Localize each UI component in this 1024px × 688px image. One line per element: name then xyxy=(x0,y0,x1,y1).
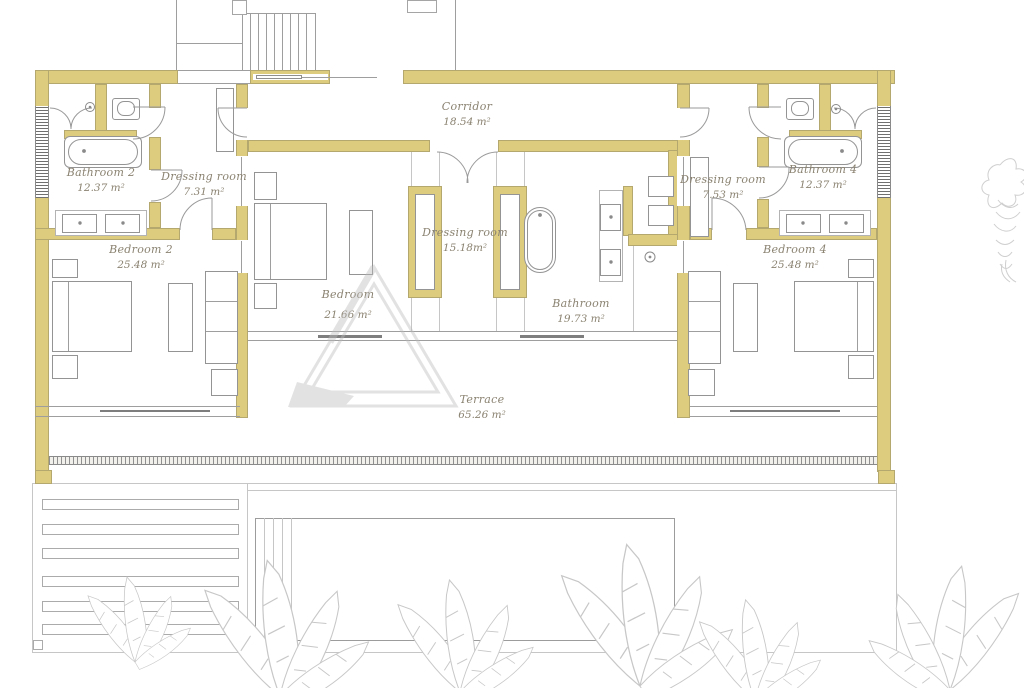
deck-slat xyxy=(42,499,239,510)
room-name: Bedroom xyxy=(322,288,375,301)
stair-tread xyxy=(250,13,251,70)
column-guide xyxy=(411,298,412,332)
nightstand xyxy=(254,283,277,309)
glass-wall-right xyxy=(690,406,877,407)
stair-tread xyxy=(306,13,307,70)
sink xyxy=(786,214,821,233)
room-name: Dressing room xyxy=(422,226,508,239)
room-area: 12.37 m² xyxy=(67,182,136,194)
wall-dress4-bath4-a xyxy=(757,84,769,108)
railing-post xyxy=(35,470,52,484)
sliding-door-track xyxy=(302,77,377,78)
nightstand xyxy=(848,259,874,278)
room-name: Bathroom 2 xyxy=(67,166,136,179)
glass-wall-left xyxy=(35,406,240,407)
deck-slat xyxy=(42,548,239,559)
toilet-2-bowl xyxy=(117,101,135,116)
shrub-sketch xyxy=(982,159,1024,282)
stair-flight-line xyxy=(242,13,316,14)
room-name: Dressing room xyxy=(161,170,247,183)
sliding-door-panel xyxy=(256,75,302,79)
stair-tread xyxy=(315,13,316,70)
window-left xyxy=(35,106,49,198)
freestanding-bathtub-inner xyxy=(527,210,553,270)
room-area: 25.48 m² xyxy=(109,259,173,271)
column-guide xyxy=(524,152,525,186)
glass-wall-mid xyxy=(248,340,677,341)
garden-bottom-line xyxy=(32,652,897,653)
wall-bath2-dress2-c xyxy=(149,202,161,228)
room-area: 18.54 m² xyxy=(442,116,492,128)
room-label-dressing-4: Dressing room 7.53 m² xyxy=(680,173,766,201)
room-area: 7.53 m² xyxy=(680,189,766,201)
room-name: Bedroom 4 xyxy=(763,243,827,256)
sink xyxy=(600,204,621,231)
wall-dress4-bath4-b xyxy=(757,137,769,167)
nightstand xyxy=(848,355,874,379)
sliding-panel xyxy=(730,410,840,412)
deck-slat xyxy=(42,601,239,612)
stair-tread xyxy=(282,13,283,70)
railing-post xyxy=(878,470,895,484)
stair-landing-line xyxy=(176,43,243,44)
column-guide xyxy=(439,152,440,186)
glass-wall-right xyxy=(690,416,877,417)
patio-edge-line xyxy=(247,490,897,491)
stair-tread xyxy=(290,13,291,70)
room-label-terrace: Terrace 65.26 m² xyxy=(458,393,506,421)
garden-left-line xyxy=(32,483,33,653)
nightstand xyxy=(52,355,78,379)
room-name: Terrace xyxy=(458,393,506,406)
armchair-2 xyxy=(211,369,238,396)
glass-wall-left xyxy=(35,416,240,417)
deck-slat xyxy=(42,624,239,635)
stair-tread xyxy=(274,13,275,70)
bed-3 xyxy=(254,203,327,280)
room-area: 7.31 m² xyxy=(161,186,247,198)
shelf-divider xyxy=(689,301,720,302)
wardrobe-dressing-2 xyxy=(216,88,234,152)
door-gap xyxy=(236,240,248,273)
wall-corridor-south-left xyxy=(248,140,430,152)
wall-shower-2 xyxy=(95,84,107,132)
wall-top-left xyxy=(35,70,178,84)
sink xyxy=(829,214,864,233)
room-label-bathroom-master: Bathroom 19.73 m² xyxy=(552,297,609,325)
room-area: 12.37 m² xyxy=(789,179,858,191)
room-area: 15.18m² xyxy=(422,242,508,254)
bed-4-pillow-line xyxy=(857,282,858,351)
room-label-bedroom-2: Bedroom 2 25.48 m² xyxy=(109,243,173,271)
sliding-panel xyxy=(520,335,584,338)
room-name: Dressing room xyxy=(680,173,766,186)
pocket-door-leaf xyxy=(241,241,242,273)
pocket-door-leaf xyxy=(683,241,684,273)
room-name: Corridor xyxy=(442,100,492,113)
door-gap xyxy=(677,108,690,140)
room-area: 25.48 m² xyxy=(763,259,827,271)
stair-tread xyxy=(266,13,267,70)
sink xyxy=(62,214,97,233)
nightstand xyxy=(52,259,78,278)
column-guide xyxy=(411,152,412,186)
terrace-railing xyxy=(49,456,877,465)
pool-step xyxy=(264,518,265,641)
deck-slat xyxy=(42,576,239,587)
stair-tread xyxy=(258,13,259,70)
deck-divider-line xyxy=(247,483,248,653)
shelf-divider xyxy=(206,301,237,302)
wall-dress4-bath4-c xyxy=(757,199,769,228)
nightstand xyxy=(254,172,277,200)
room-label-bathroom-4: Bathroom 4 12.37 m² xyxy=(789,163,858,191)
column-guide xyxy=(496,152,497,186)
room-label-dressing-2: Dressing room 7.31 m² xyxy=(161,170,247,198)
garden-right-line xyxy=(896,483,897,653)
glass-wall-mid xyxy=(248,331,677,332)
deck-corner-post xyxy=(33,640,43,650)
bench-2 xyxy=(168,283,193,352)
shelf-niche xyxy=(648,205,674,226)
pool-step xyxy=(291,518,292,641)
armchair-4 xyxy=(688,369,715,396)
wall-shower-4 xyxy=(819,84,831,132)
chimney-box xyxy=(232,0,247,15)
room-area: 21.66 m² xyxy=(322,309,375,321)
bed-2 xyxy=(52,281,132,352)
bed-4 xyxy=(794,281,874,352)
room-area: 65.26 m² xyxy=(458,409,506,421)
sink xyxy=(600,249,621,276)
wall-bath2-dress2-a xyxy=(149,84,161,108)
wall-vanity-splash xyxy=(623,186,633,236)
room-label-dressing-master: Dressing room 15.18m² xyxy=(422,226,508,254)
column-guide xyxy=(496,298,497,332)
stair-tread xyxy=(298,13,299,70)
stair-wall-line xyxy=(176,0,177,70)
room-label-corridor: Corridor 18.54 m² xyxy=(442,100,492,128)
room-name: Bathroom 4 xyxy=(789,163,858,176)
bench-3 xyxy=(349,210,373,275)
bed-3-pillow-line xyxy=(270,204,271,279)
sliding-panel xyxy=(100,410,210,412)
shelf-divider xyxy=(689,331,720,332)
entrance-threshold xyxy=(178,70,250,71)
bathtub-2-inner xyxy=(68,139,138,165)
wall-bath2-dress2-b xyxy=(149,137,161,170)
room-label-bedroom-3: Bedroom 21.66 m² xyxy=(322,288,375,321)
deck-slat xyxy=(42,524,239,535)
roof-box xyxy=(407,0,437,13)
sliding-panel xyxy=(318,335,382,338)
room-area: 19.73 m² xyxy=(552,313,609,325)
pool-step xyxy=(282,518,283,641)
pool-step xyxy=(273,518,274,641)
room-label-bedroom-4: Bedroom 4 25.48 m² xyxy=(763,243,827,271)
door-gap xyxy=(236,108,248,140)
room-label-bathroom-2: Bathroom 2 12.37 m² xyxy=(67,166,136,194)
room-name: Bathroom xyxy=(552,297,609,310)
shelf-unit-4 xyxy=(688,271,721,364)
garden-top-line xyxy=(32,483,897,484)
bench-4 xyxy=(733,283,758,352)
wall-top-right xyxy=(403,70,895,84)
swimming-pool xyxy=(255,518,675,641)
sink xyxy=(105,214,140,233)
shelf-unit-2 xyxy=(205,271,238,364)
window-right xyxy=(877,106,891,198)
column-guide xyxy=(524,298,525,332)
toilet-4-bowl xyxy=(791,101,809,116)
floor-plan: Corridor 18.54 m² Bathroom 2 12.37 m² Dr… xyxy=(0,0,1024,688)
wall-corridor-south-right xyxy=(498,140,678,152)
shelf-niche xyxy=(648,176,674,197)
wc-room-line xyxy=(633,246,634,332)
room-name: Bedroom 2 xyxy=(109,243,173,256)
bed-2-pillow-line xyxy=(68,282,69,351)
column-guide xyxy=(439,298,440,332)
shelf-divider xyxy=(206,331,237,332)
wall-bedroom2-north-b xyxy=(212,228,236,240)
bathtub-4-inner xyxy=(788,139,858,165)
stair-wall-line xyxy=(455,0,456,70)
deck-corner-post xyxy=(238,640,248,650)
